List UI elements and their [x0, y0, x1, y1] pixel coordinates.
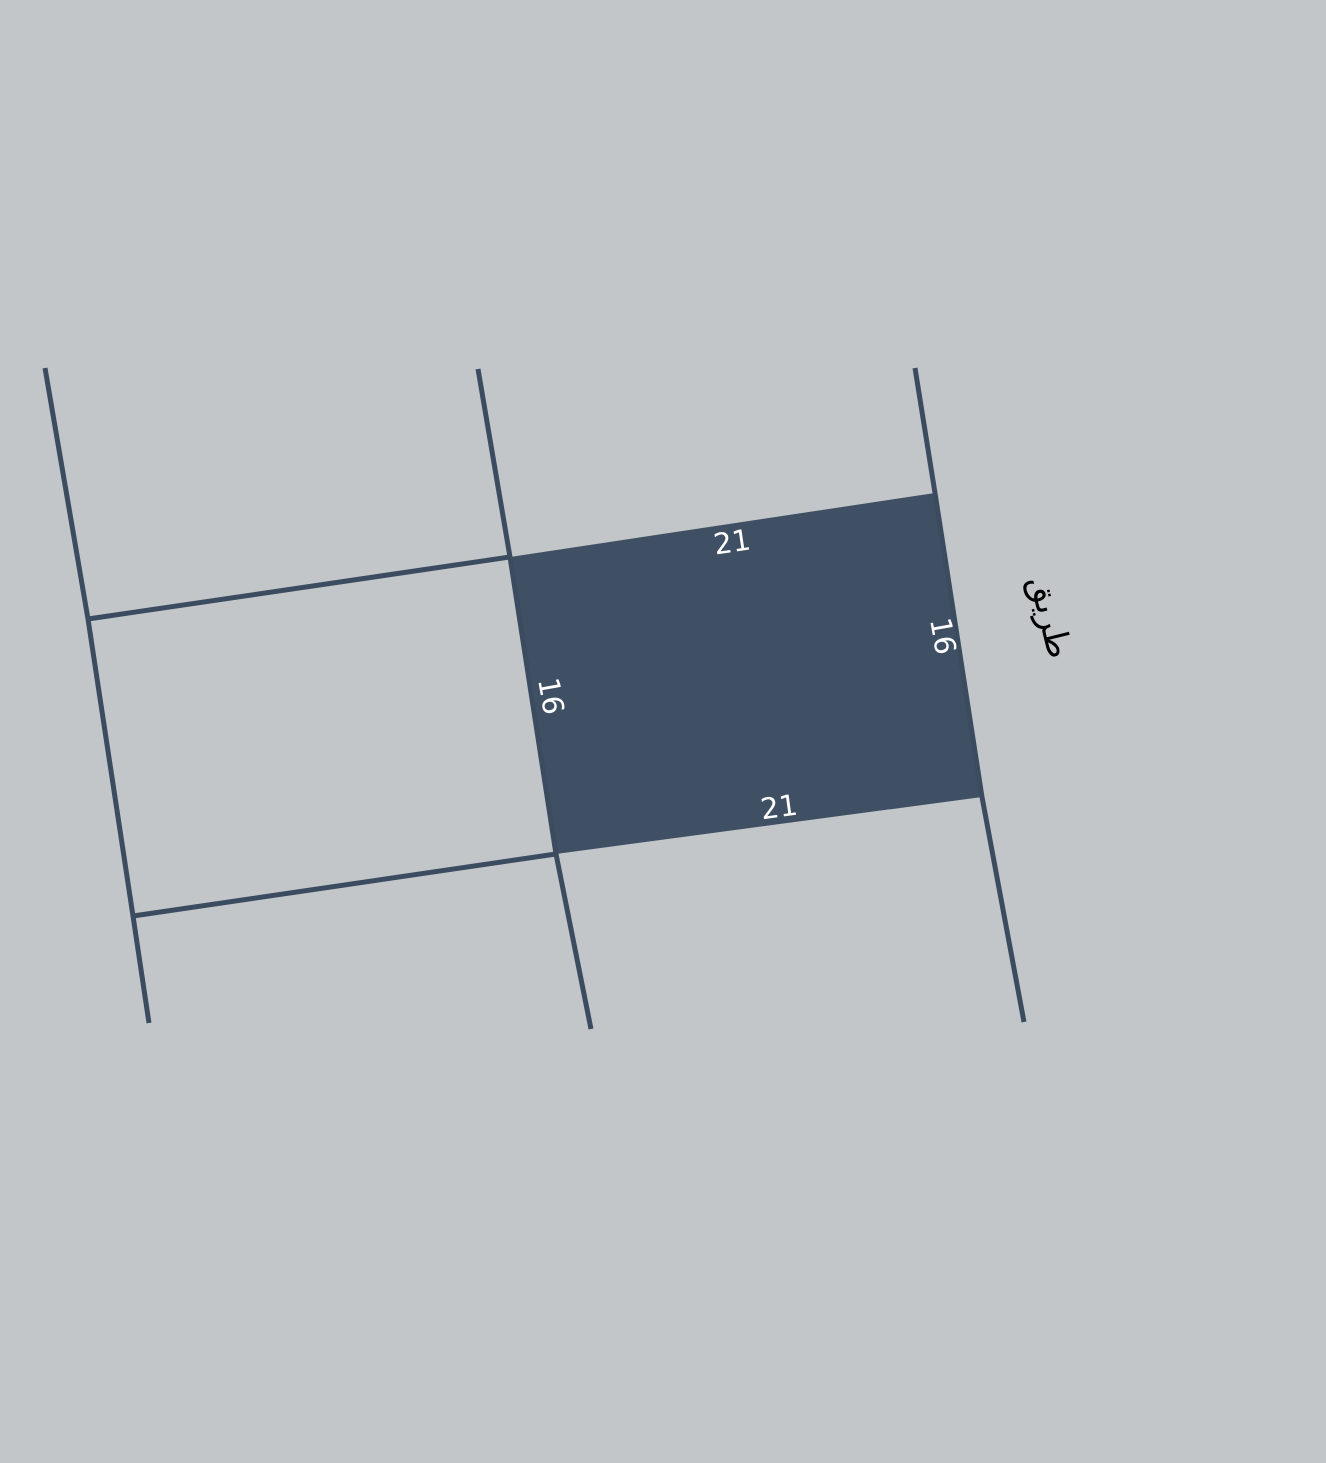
parcel-dimension-label-right: 16	[923, 615, 963, 657]
plot-edge-upper	[88, 557, 510, 619]
boundary-line-left	[45, 368, 149, 1023]
parcel-dimension-label-bottom: 21	[758, 788, 799, 827]
cadastral-map: 21 21 16 16 طريق	[0, 0, 1326, 1463]
cadastral-map-canvas: 21 21 16 16 طريق	[0, 0, 1326, 1463]
parcel-dimension-label-left: 16	[531, 675, 571, 717]
road-label: طريق	[1020, 572, 1079, 663]
plot-edge-lower	[133, 854, 556, 916]
parcel-dimension-label-top: 21	[711, 522, 753, 561]
